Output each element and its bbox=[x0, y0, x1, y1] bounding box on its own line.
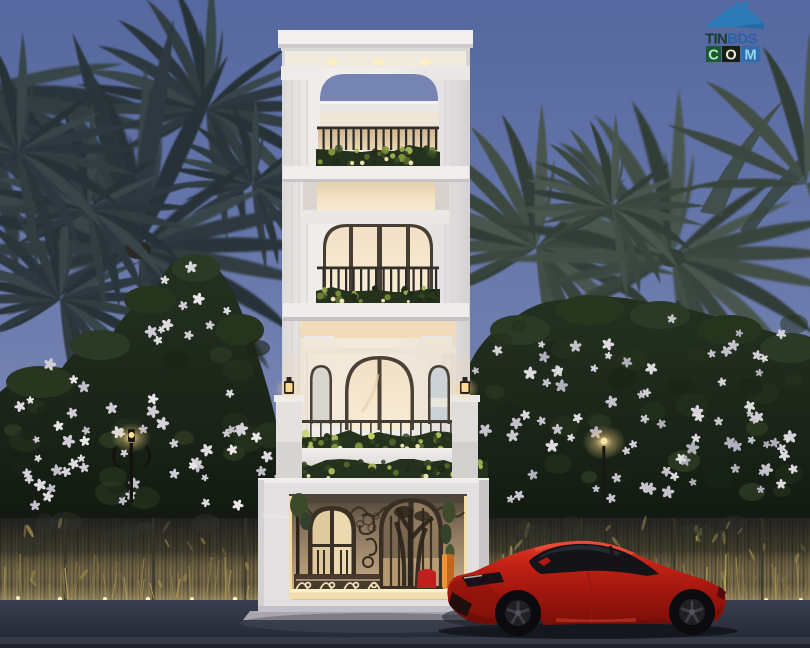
svg-text:O: O bbox=[725, 48, 736, 64]
svg-text:C: C bbox=[708, 48, 719, 64]
svg-text:M: M bbox=[744, 48, 756, 64]
svg-text:TINBDS: TINBDS bbox=[705, 31, 757, 48]
svg-text:Your House: Your House bbox=[261, 514, 290, 520]
